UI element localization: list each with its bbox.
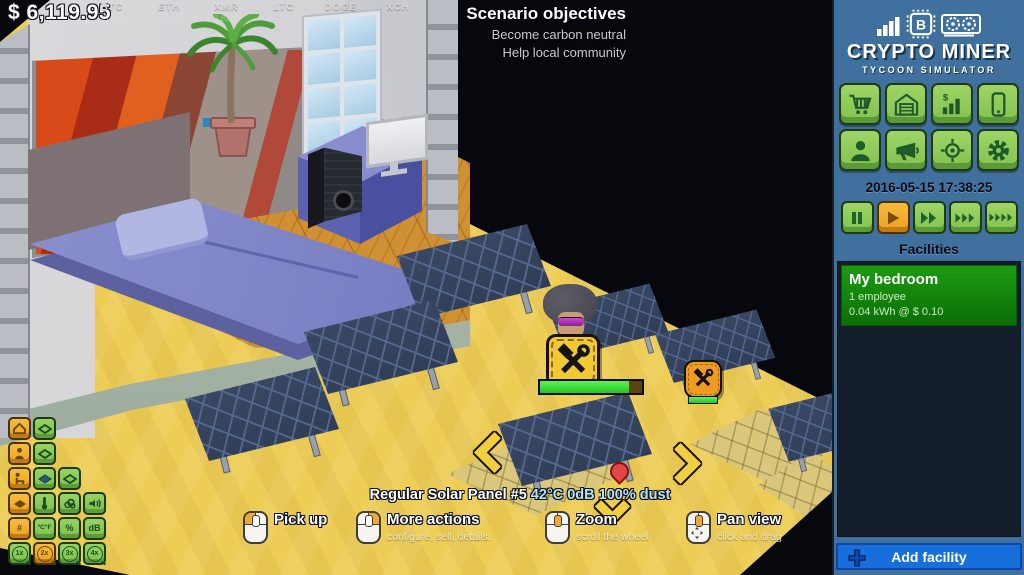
svg-text:B: B bbox=[916, 16, 926, 32]
pc-fan bbox=[333, 190, 354, 211]
plus-icon bbox=[848, 549, 866, 567]
game-window: $ 6,119.95 BTC454.13 ETH11.79 XMR0.8209 … bbox=[0, 0, 1024, 575]
market-button[interactable]: $ bbox=[931, 83, 973, 125]
zoom-3x-button[interactable]: 3x bbox=[58, 542, 81, 565]
scenario-objectives: Scenario objectives Become carbon neutra… bbox=[466, 4, 626, 60]
facilities-button[interactable] bbox=[885, 83, 927, 125]
potted-palm-plant[interactable] bbox=[186, 14, 278, 169]
repair-progress-bar bbox=[538, 379, 644, 395]
person-icon bbox=[847, 137, 874, 164]
secondary-progress-fill bbox=[689, 397, 717, 403]
monitor[interactable] bbox=[366, 118, 428, 176]
logo-subtitle: TYCOON SIMULATOR bbox=[847, 65, 1011, 75]
ticker-item: XMR0.8209 bbox=[209, 2, 243, 23]
facility-name: My bedroom bbox=[849, 271, 1009, 288]
ticker-item: BTC454.13 bbox=[95, 2, 129, 23]
legend-zoom: Zoomscroll the wheel bbox=[545, 511, 648, 544]
wall-frame-beam bbox=[426, 0, 458, 244]
sidebar: B CRYPTO MINER TYCOON SIMULATOR $ 2016-0… bbox=[832, 0, 1024, 575]
temp-unit-button[interactable]: °C°F bbox=[33, 517, 56, 540]
fast-forward-2-button[interactable] bbox=[913, 201, 946, 234]
secondary-progress-bar bbox=[688, 396, 718, 404]
objective-item: Become carbon neutral bbox=[466, 27, 626, 42]
legend-pick-up: Pick up bbox=[243, 511, 327, 544]
warehouse-icon bbox=[893, 91, 920, 118]
solar-panel-selected[interactable] bbox=[494, 390, 654, 500]
roof-overlay-button[interactable] bbox=[8, 417, 31, 440]
objective-item: Help local community bbox=[466, 45, 626, 60]
play-icon bbox=[885, 210, 901, 226]
game-viewport[interactable]: $ 6,119.95 BTC454.13 ETH11.79 XMR0.8209 … bbox=[0, 0, 832, 575]
fast-forward-4-button[interactable] bbox=[985, 201, 1018, 234]
decibel-unit-button[interactable]: dB bbox=[83, 517, 106, 540]
zoom-2x-button[interactable]: 2x bbox=[33, 542, 56, 565]
tile-overlay-button[interactable] bbox=[33, 417, 56, 440]
phone-button[interactable] bbox=[977, 83, 1019, 125]
market-chart-icon: $ bbox=[939, 91, 966, 118]
game-logo: B CRYPTO MINER TYCOON SIMULATOR bbox=[847, 5, 1011, 75]
co2-overlay-button[interactable] bbox=[58, 492, 81, 515]
repair-progress-fill bbox=[540, 381, 629, 393]
heat-tile-overlay-button[interactable] bbox=[33, 467, 56, 490]
sidebar-menu: $ bbox=[839, 83, 1019, 171]
fast-forward-3-button[interactable] bbox=[949, 201, 982, 234]
repair-tools-icon bbox=[555, 343, 591, 379]
tile-overlay-button[interactable] bbox=[58, 467, 81, 490]
pause-button[interactable] bbox=[841, 201, 874, 234]
repair-task-badge-small[interactable] bbox=[684, 360, 722, 398]
marketing-button[interactable] bbox=[885, 129, 927, 171]
temperature-overlay-button[interactable] bbox=[33, 492, 56, 515]
character-sunglasses bbox=[558, 317, 584, 326]
facility-card-my-bedroom[interactable]: My bedroom 1 employee 0.04 kWh @ $ 0.10 bbox=[841, 265, 1017, 326]
solar-panel[interactable] bbox=[181, 365, 341, 475]
ticker-item: LTC bbox=[267, 2, 301, 23]
phone-icon bbox=[985, 91, 1012, 118]
solar-panel[interactable] bbox=[765, 380, 832, 474]
noise-overlay-button[interactable] bbox=[83, 492, 106, 515]
play-button[interactable] bbox=[877, 201, 910, 234]
pc-tower[interactable] bbox=[308, 146, 362, 230]
wall-frame-beam bbox=[0, 24, 30, 438]
ticker-item: ETH11.79 bbox=[152, 2, 186, 23]
pause-icon bbox=[849, 210, 865, 226]
ff2-icon bbox=[920, 211, 938, 225]
percent-unit-button[interactable]: % bbox=[58, 517, 81, 540]
cart-icon bbox=[847, 91, 874, 118]
target-icon bbox=[939, 137, 966, 164]
staff-button[interactable] bbox=[839, 129, 881, 171]
objectives-title: Scenario objectives bbox=[466, 4, 626, 24]
add-facility-label: Add facility bbox=[891, 549, 966, 565]
seat-overlay-button[interactable] bbox=[8, 467, 31, 490]
pan-arrows-icon bbox=[686, 511, 711, 544]
ticker-item: DOGE bbox=[324, 2, 358, 23]
chip-b-icon: B bbox=[906, 9, 936, 39]
shop-button[interactable] bbox=[839, 83, 881, 125]
logo-title: CRYPTO MINER bbox=[847, 41, 1011, 64]
ff4-icon bbox=[989, 212, 1013, 223]
count-overlay-button[interactable]: # bbox=[8, 517, 31, 540]
mouse-right-icon bbox=[356, 511, 381, 544]
facility-employees: 1 employee bbox=[849, 291, 1009, 303]
facilities-heading: Facilities bbox=[899, 241, 959, 257]
facilities-list[interactable]: My bedroom 1 employee 0.04 kWh @ $ 0.10 bbox=[837, 261, 1021, 537]
repair-tools-icon bbox=[692, 368, 714, 390]
gear-icon bbox=[985, 137, 1012, 164]
zoom-4x-button[interactable]: 4x bbox=[83, 542, 106, 565]
overlay-toolbar: # °C°F % dB 1x 2x 3x 4x bbox=[8, 417, 106, 565]
speed-controls bbox=[841, 201, 1018, 234]
zoom-1x-button[interactable]: 1x bbox=[8, 542, 31, 565]
tile-filled-overlay-button[interactable] bbox=[8, 492, 31, 515]
settings-button[interactable] bbox=[977, 129, 1019, 171]
svg-text:$: $ bbox=[942, 92, 948, 103]
gpu-icon bbox=[940, 11, 982, 39]
mouse-wheel-icon bbox=[545, 511, 570, 544]
game-datetime: 2016-05-15 17:38:25 bbox=[866, 180, 993, 195]
facility-power: 0.04 kWh @ $ 0.10 bbox=[849, 306, 1009, 318]
ff3-icon bbox=[955, 212, 975, 224]
legend-pan-view: Pan viewclick and drag bbox=[686, 511, 782, 544]
mouse-left-icon bbox=[243, 511, 268, 544]
tile-overlay-button[interactable] bbox=[33, 442, 56, 465]
megaphone-icon bbox=[893, 137, 920, 164]
add-facility-button[interactable]: Add facility bbox=[836, 543, 1022, 570]
legend-more-actions: More actionsconfigure, sell, details. bbox=[356, 511, 491, 544]
employee-overlay-button[interactable] bbox=[8, 442, 31, 465]
goals-button[interactable] bbox=[931, 129, 973, 171]
crypto-ticker: BTC454.13 ETH11.79 XMR0.8209 LTC DOGE XC… bbox=[95, 2, 415, 23]
bar-chart-icon bbox=[876, 13, 902, 39]
ticker-item: XCH bbox=[381, 2, 415, 23]
